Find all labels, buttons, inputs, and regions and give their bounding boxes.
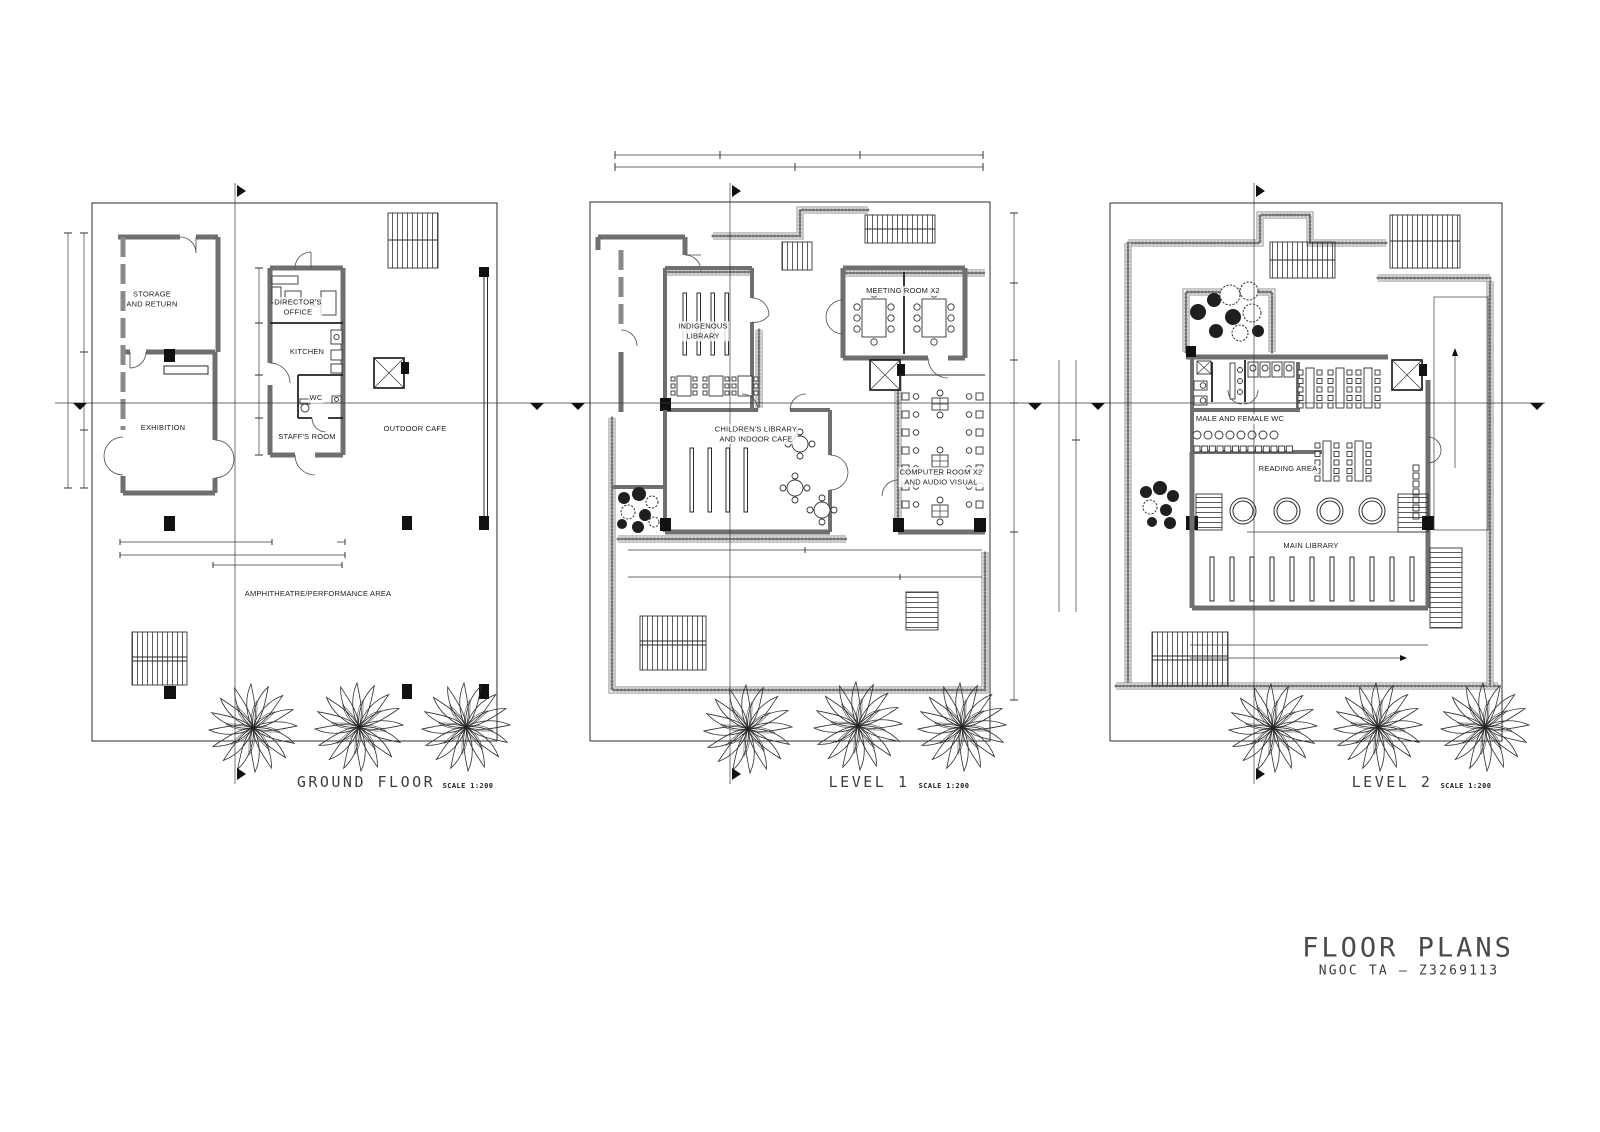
plan-title-ground-floor: GROUND FLOOR [297, 773, 435, 791]
round-tables [1230, 498, 1385, 524]
plan-scale-ground-floor: SCALE 1:200 [443, 782, 494, 790]
room-label-childrens-library: CHILDREN'S LIBRARY AND INDOOR CAFE [714, 424, 798, 444]
room-label-storage: STORAGE AND RETURN [125, 289, 178, 309]
stairs-icon [1152, 632, 1228, 686]
room-label-meeting-room: MEETING ROOM X2 [865, 286, 941, 296]
stairs-icon [782, 242, 812, 270]
floor-plans-sheet: STORAGE AND RETURN DIRECTOR'S OFFICE KIT… [0, 0, 1600, 1132]
plan-scale-level-2: SCALE 1:200 [1441, 782, 1492, 790]
room-label-amphitheatre: AMPHITHEATRE/PERFORMANCE AREA [244, 589, 393, 599]
plan-level-2-drawing [1110, 203, 1529, 772]
stairs-icon [906, 592, 938, 630]
tree-cluster-icon [1140, 481, 1179, 529]
room-label-kitchen: KITCHEN [289, 347, 325, 357]
stairs-icon [132, 632, 187, 685]
library-shelves [1210, 557, 1414, 601]
plan-title-level-1: LEVEL 1 [829, 773, 910, 791]
sheet-author: NGOC TA – Z3269113 [1319, 964, 1499, 979]
plan-scale-level-1: SCALE 1:200 [919, 782, 970, 790]
tree-cluster-icon [617, 487, 659, 533]
room-label-directors-office: DIRECTOR'S OFFICE [273, 297, 322, 317]
room-label-reading-area: READING AREA [1258, 464, 1319, 474]
plan-title-level-2: LEVEL 2 [1352, 773, 1433, 791]
room-label-main-library: MAIN LIBRARY [1282, 541, 1339, 551]
sheet-title: FLOOR PLANS [1302, 933, 1514, 964]
room-label-exhibition: EXHIBITION [140, 423, 187, 433]
stairs-icon [640, 616, 706, 670]
room-label-male-female-wc: MALE AND FEMALE WC [1195, 414, 1285, 424]
wc-fixtures [1193, 362, 1294, 452]
room-label-computer-room: COMPUTER ROOM X2 AND AUDIO VISUAL [899, 467, 984, 487]
plan-level-1-drawing [590, 151, 1080, 773]
stairs-icon [1430, 548, 1462, 628]
room-label-indigenous-library: INDIGENOUS LIBRARY [677, 321, 729, 341]
room-label-outdoor-cafe: OUTDOOR CAFE [383, 424, 448, 434]
stairs-icon [1196, 494, 1222, 530]
computer-stations [902, 390, 983, 525]
room-label-wc: WC [309, 393, 324, 403]
room-label-staffs-room: STAFF'S ROOM [277, 432, 336, 442]
